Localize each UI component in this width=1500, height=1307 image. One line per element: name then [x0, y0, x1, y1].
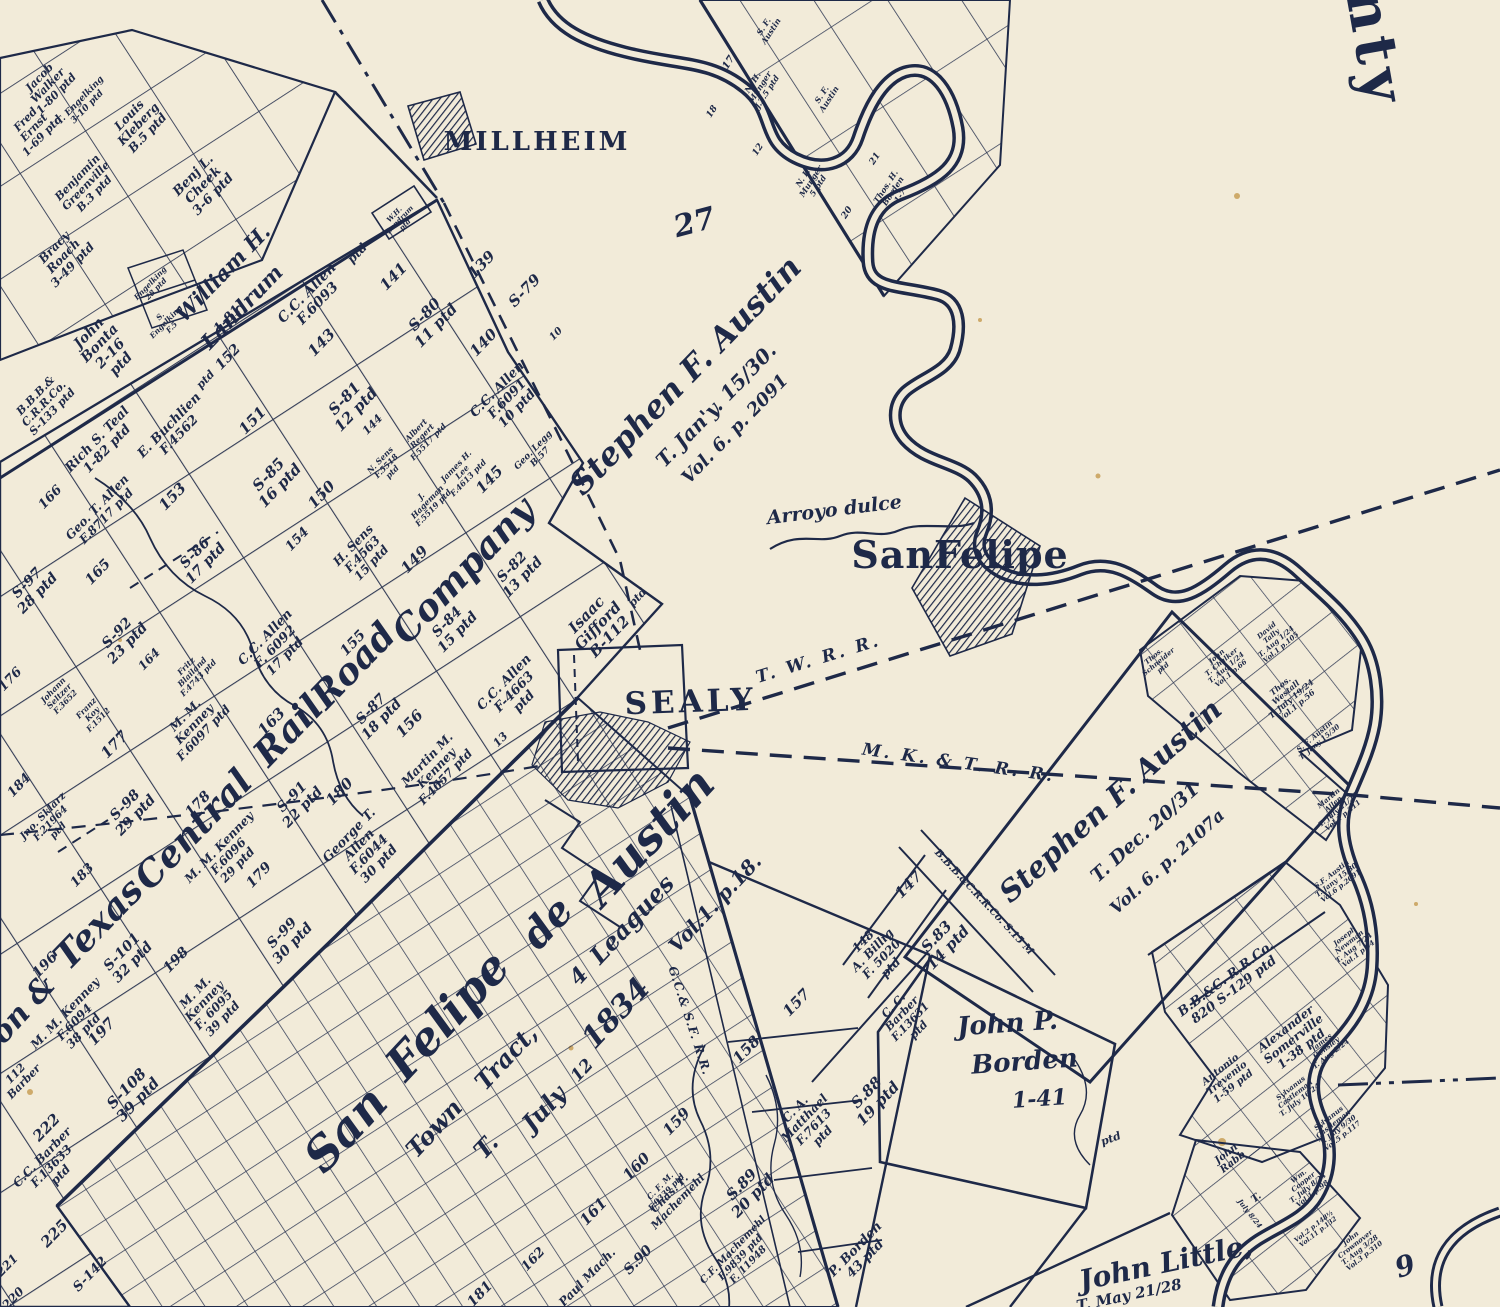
grant-label-john-p-borden-3: 1-41 [1011, 1084, 1068, 1114]
map-canvas: untyMILLHEIMSanFelipeSEALYArroyo dulce27… [0, 0, 1500, 1307]
town-label-sealy: SEALY [624, 682, 757, 723]
county-map-svg: untyMILLHEIMSanFelipeSEALYArroyo dulce27… [0, 0, 1500, 1307]
town-label-millheim: MILLHEIM [444, 127, 631, 157]
town-label-san-felipe: SanFelipe [851, 532, 1068, 577]
